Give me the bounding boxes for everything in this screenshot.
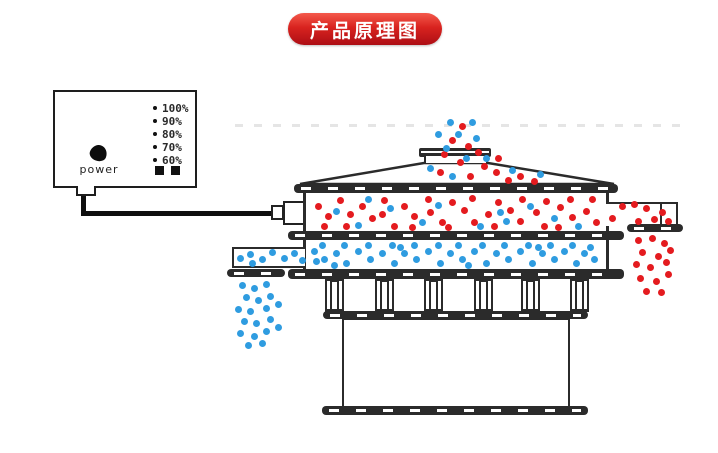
particle-blue	[267, 293, 274, 300]
machine-lid	[296, 161, 618, 186]
particle-blue	[237, 330, 244, 337]
particle-red	[663, 259, 670, 266]
bottom-flange-band	[288, 269, 624, 279]
particle-red	[639, 249, 646, 256]
power-cable-horizontal	[81, 211, 279, 216]
spring	[570, 279, 589, 312]
spring-leg	[436, 281, 443, 310]
particle-blue	[253, 320, 260, 327]
bullet-icon	[153, 132, 157, 136]
particle-blue	[235, 306, 242, 313]
left-discharge-tray	[227, 269, 285, 277]
particle-blue	[473, 135, 480, 142]
spring-leg	[533, 281, 540, 310]
clamp-dashes	[301, 187, 611, 190]
particle-blue	[263, 328, 270, 335]
spring	[474, 279, 493, 312]
level-label: 80%	[162, 128, 182, 141]
power-label: power	[71, 163, 127, 176]
cable-connector-tab	[76, 186, 96, 196]
collar-highlight	[421, 151, 489, 153]
bullet-icon	[153, 145, 157, 149]
right-discharge-tray	[627, 224, 683, 232]
power-knob-icon	[88, 143, 109, 164]
spring-leg	[424, 281, 431, 310]
particle-red	[667, 247, 674, 254]
title-banner-label: 产品原理图	[310, 16, 420, 43]
level-row: 100%	[153, 102, 189, 114]
particle-red	[449, 137, 456, 144]
bullet-icon	[153, 158, 157, 162]
level-row: 90%	[153, 115, 182, 127]
particle-red	[635, 237, 642, 244]
particle-red	[661, 240, 668, 247]
level-label: 60%	[162, 154, 182, 167]
particle-blue	[251, 333, 258, 340]
channel-step	[660, 204, 662, 226]
ultrasonic-control-box: power 100% 90% 80% 70% 60%	[53, 90, 197, 188]
lid-clamp-band	[294, 184, 618, 193]
particle-red	[665, 271, 672, 278]
level-label: 100%	[162, 102, 189, 115]
tray-dashes	[634, 227, 676, 230]
particle-blue	[251, 285, 258, 292]
left-discharge-channel	[232, 247, 305, 268]
particle-red	[633, 261, 640, 268]
spring-leg	[375, 281, 382, 310]
particle-blue	[275, 324, 282, 331]
particle-red	[643, 288, 650, 295]
particle-red	[658, 289, 665, 296]
level-label: 90%	[162, 115, 182, 128]
flange-dashes	[295, 234, 617, 237]
particle-blue	[239, 282, 246, 289]
particle-blue	[275, 301, 282, 308]
particle-blue	[247, 308, 254, 315]
particle-blue	[241, 318, 248, 325]
particle-blue	[245, 342, 252, 349]
particle-blue	[455, 131, 462, 138]
machine-base	[342, 318, 570, 408]
bullet-icon	[153, 106, 157, 110]
spring-leg	[570, 281, 577, 310]
tray-dashes	[234, 272, 278, 275]
top-deck	[303, 192, 609, 232]
lower-deck	[303, 239, 609, 270]
product-principle-diagram: 产品原理图 power 100% 90% 80% 70% 60%	[0, 0, 718, 453]
spring-leg	[582, 281, 589, 310]
level-row: 70%	[153, 141, 182, 153]
spring-leg	[337, 281, 344, 310]
spring-leg	[521, 281, 528, 310]
level-row: 60%	[153, 154, 182, 166]
title-banner: 产品原理图	[288, 13, 442, 45]
spring-leg	[474, 281, 481, 310]
particle-blue	[255, 297, 262, 304]
particle-red	[655, 253, 662, 260]
spring	[424, 279, 443, 312]
particle-red	[653, 278, 660, 285]
particle-red	[647, 264, 654, 271]
right-discharge-channel	[606, 202, 678, 226]
spring-leg	[486, 281, 493, 310]
spring	[521, 279, 540, 312]
feed-inlet-neck	[424, 156, 488, 163]
spring-leg	[387, 281, 394, 310]
base-bottom-plate	[322, 406, 588, 415]
bullet-icon	[153, 119, 157, 123]
particle-blue	[263, 281, 270, 288]
flange-dashes	[295, 273, 617, 276]
spring	[325, 279, 344, 312]
watermark-dashes	[235, 124, 690, 127]
spring	[375, 279, 394, 312]
indicator-square-icon	[171, 166, 180, 175]
particle-blue	[263, 305, 270, 312]
level-label: 70%	[162, 141, 182, 154]
spring-leg	[325, 281, 332, 310]
mid-flange-band	[288, 231, 624, 240]
particle-blue	[435, 131, 442, 138]
particle-blue	[243, 294, 250, 301]
plate-dashes	[329, 409, 581, 412]
plate-dashes	[330, 314, 581, 317]
indicator-square-icon	[155, 166, 164, 175]
particle-red	[649, 235, 656, 242]
level-row: 80%	[153, 128, 182, 140]
particle-blue	[267, 316, 274, 323]
particle-blue	[259, 340, 266, 347]
particle-red	[637, 275, 644, 282]
